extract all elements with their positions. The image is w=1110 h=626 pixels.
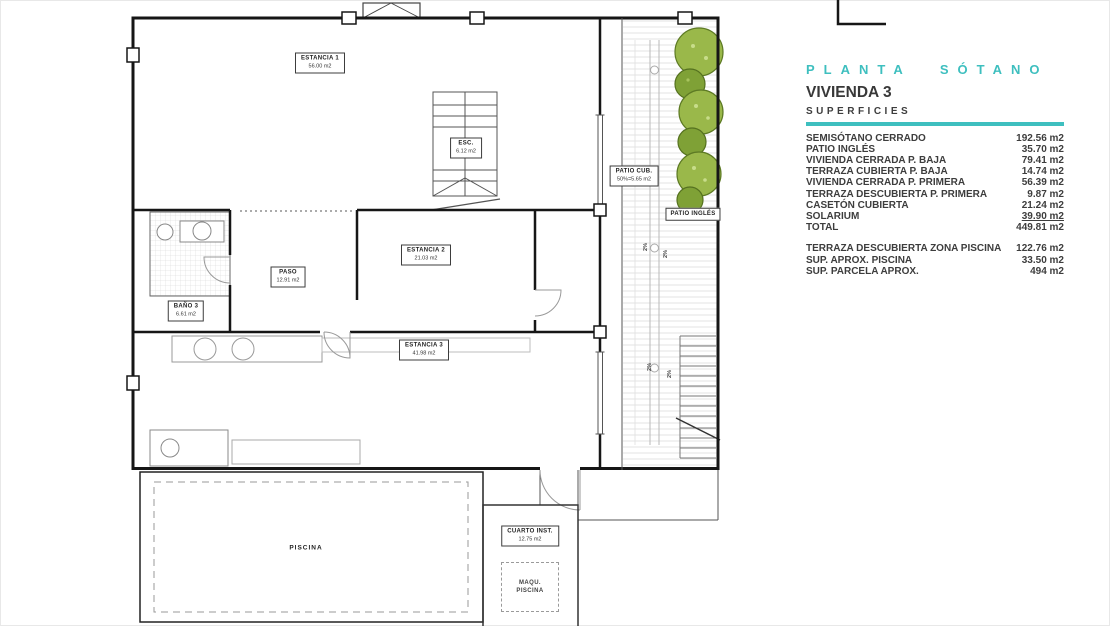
columns [127, 12, 692, 390]
table-row: TERRAZA CUBIERTA P. BAJA14.74 m2 [806, 166, 1064, 177]
surfaces-table: SEMISÓTANO CERRADO192.56 m2 PATIO INGLÉS… [806, 133, 1064, 277]
room-label-patio-cub: PATIO CUB.50%=5.65 m2 [610, 166, 659, 187]
table-row: VIVIENDA CERRADA P. BAJA79.41 m2 [806, 155, 1064, 166]
table-row: CASETÓN CUBIERTA21.24 m2 [806, 200, 1064, 211]
room-label-paso: PASO12.91 m2 [271, 267, 306, 288]
table-row: PATIO INGLÉS35.70 m2 [806, 144, 1064, 155]
table-row: SEMISÓTANO CERRADO192.56 m2 [806, 133, 1064, 144]
table-row: TERRAZA DESCUBIERTA P. PRIMERA9.87 m2 [806, 189, 1064, 200]
room-label-esc: ESC.6.12 m2 [450, 138, 482, 159]
surfaces-heading: SUPERFICIES [806, 106, 1064, 117]
unit-title: VIVIENDA 3 [806, 84, 1064, 102]
room-label-estancia1: ESTANCIA 156.00 m2 [295, 53, 345, 74]
slope-annotation: 2% [643, 243, 649, 251]
room-label-cuarto-inst: CUARTO INST.12.75 m2 [501, 526, 559, 547]
top-bay [363, 3, 420, 18]
doors [324, 290, 580, 510]
bush-cluster [675, 28, 723, 213]
table-row: SUP. APROX. PISCINA33.50 m2 [806, 255, 1064, 266]
estancia3-fixtures [150, 336, 530, 466]
walls [133, 0, 886, 520]
room-label-estancia3: ESTANCIA 341.98 m2 [399, 340, 449, 361]
plan-title: PLANTA SÓTANO [806, 62, 1064, 77]
bathroom [150, 212, 230, 296]
room-label-estancia2: ESTANCIA 221.03 m2 [401, 245, 451, 266]
table-row: SOLARIUM39.90 m2 [806, 211, 1064, 222]
surfaces-panel: PLANTA SÓTANO VIVIENDA 3 SUPERFICIES SEM… [806, 62, 1064, 277]
table-row: SUP. PARCELA APROX.494 m2 [806, 266, 1064, 277]
room-label-bano3: BAÑO 36.61 m2 [168, 301, 204, 322]
room-label-patio-ingles: PATIO INGLÉS [665, 208, 720, 221]
slope-annotation: 2% [647, 363, 653, 371]
room-label-piscina: PISCINA [289, 545, 322, 552]
floorplan-sheet: ESTANCIA 156.00 m2 ESC.6.12 m2 PATIO CUB… [0, 0, 1110, 626]
table-row-total: TOTAL449.81 m2 [806, 222, 1064, 233]
table-row: VIVIENDA CERRADA P. PRIMERA56.39 m2 [806, 177, 1064, 188]
slope-annotation: 2% [667, 370, 673, 378]
pool-machinery-box: MAQU. PISCINA [501, 562, 559, 612]
slope-annotation: 2% [663, 250, 669, 258]
accent-rule [806, 122, 1064, 126]
table-row: TERRAZA DESCUBIERTA ZONA PISCINA122.76 m… [806, 243, 1064, 254]
